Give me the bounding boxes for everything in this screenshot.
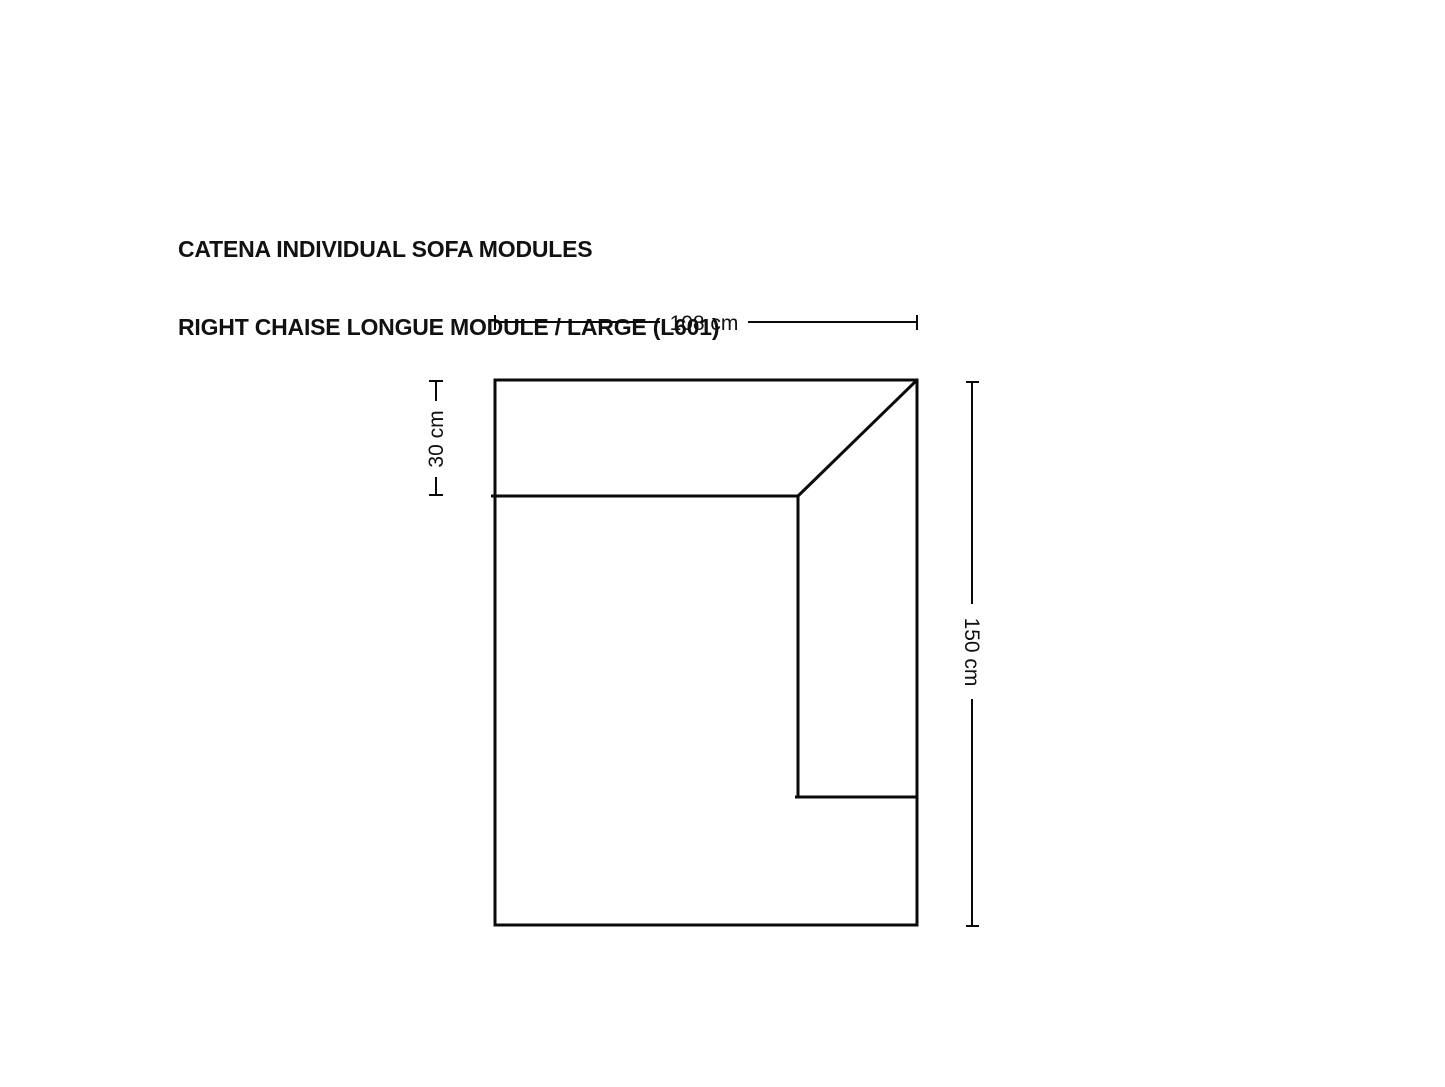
depth-dimension-label: 150 cm [960, 618, 983, 687]
sofa-module-outline-group [491, 380, 917, 925]
corner-miter-line [798, 380, 917, 496]
sofa-module-dimension-drawing: 108 cm 30 cm 150 cm [0, 0, 1445, 1087]
width-dimension-label: 108 cm [670, 312, 739, 335]
backrest-depth-dimension-label: 30 cm [425, 410, 448, 467]
depth-dimension: 150 cm [960, 382, 983, 926]
width-dimension: 108 cm [495, 312, 917, 335]
sofa-outline [495, 380, 917, 925]
product-spec-page: CATENA INDIVIDUAL SOFA MODULES RIGHT CHA… [0, 0, 1445, 1087]
backrest-depth-dimension: 30 cm [425, 381, 448, 495]
